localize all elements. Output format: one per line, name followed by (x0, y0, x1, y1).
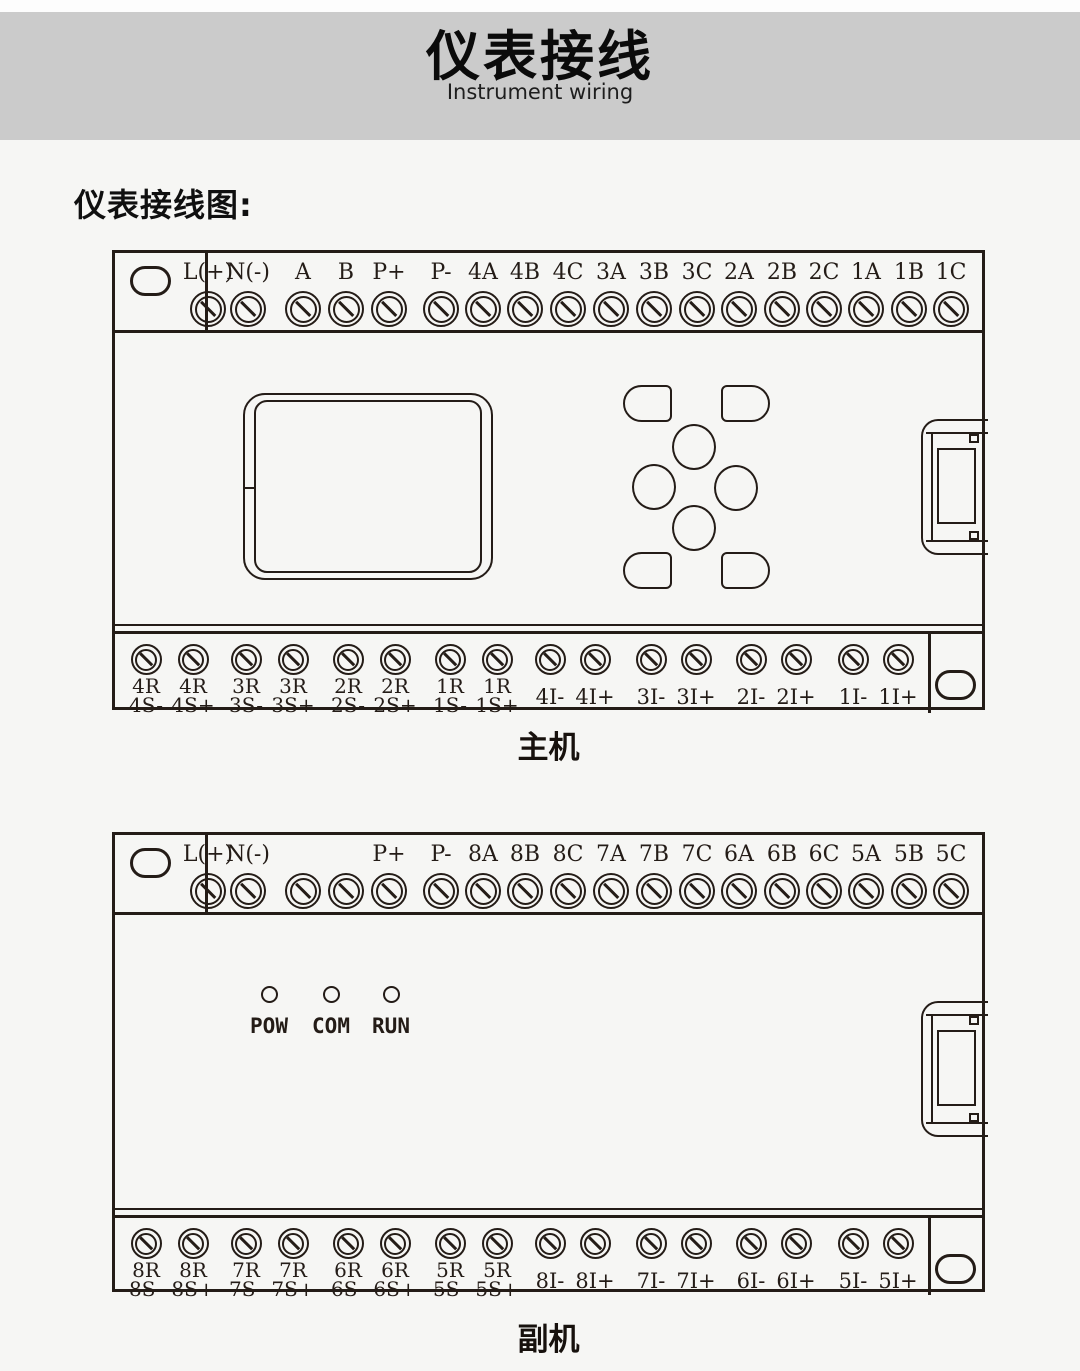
keypad-button-down (672, 505, 716, 551)
screw-terminal-icon (580, 1228, 611, 1259)
divider-line (928, 1218, 931, 1295)
connector-clip (969, 531, 979, 540)
terminal-label: 2R2S+ (366, 677, 424, 715)
section-title: 仪表接线图: (74, 180, 253, 226)
bottom-terminal-strip: 8R8S-8R8S+7R7S-7R7S+6R6S-6R6S+5R5S-5R5S+… (115, 1215, 982, 1295)
top-terminal-strip: L(+)N(-)P+P-8A8B8C7A7B7C6A6B6C5A5B5C (115, 835, 982, 915)
connector-socket (937, 1030, 976, 1106)
connector-cap-line (926, 1122, 988, 1124)
screw-terminal-icon (781, 644, 812, 675)
terminal-column: 7I+ (667, 1228, 725, 1291)
screw-terminal-icon (333, 1228, 364, 1259)
screw-terminal-icon (681, 644, 712, 675)
terminal-label: 6R6S+ (366, 1261, 424, 1299)
screw-terminal-icon (278, 1228, 309, 1259)
screw-terminal-icon (482, 1228, 513, 1259)
led-indicator-icon (323, 986, 340, 1003)
terminal-column: 2R2S+ (366, 644, 424, 715)
connector-clip (969, 434, 979, 443)
screw-terminal-icon (380, 644, 411, 675)
terminal-label: 4R4S+ (164, 677, 222, 715)
page-header: 仪表接线 Instrument wiring (0, 12, 1080, 140)
terminal-column: 7R7S+ (264, 1228, 322, 1299)
terminal-label: 6I+ (767, 1261, 825, 1291)
terminal-column: 8R8S+ (164, 1228, 222, 1299)
screw-terminal-icon (435, 1228, 466, 1259)
terminal-label: 5C (919, 838, 983, 873)
secondary-unit-diagram: L(+)N(-)P+P-8A8B8C7A7B7C6A6B6C5A5B5C POW… (112, 832, 985, 1292)
terminal-column: 5I+ (869, 1228, 927, 1291)
mounting-slot-icon (130, 848, 171, 878)
screw-terminal-icon (482, 644, 513, 675)
terminal-label: 8I+ (566, 1261, 624, 1291)
terminal-column: 3R3S+ (264, 644, 322, 715)
screw-terminal-icon (636, 1228, 667, 1259)
terminal-label: 8R8S+ (164, 1261, 222, 1299)
screw-terminal-icon (736, 1228, 767, 1259)
terminal-column: 6R6S+ (366, 1228, 424, 1299)
page-subtitle: Instrument wiring (0, 80, 1080, 104)
keypad-button-bottom-left (623, 552, 672, 589)
top-margin (0, 0, 1080, 12)
terminal-label: 3I+ (667, 677, 725, 707)
screw-terminal-icon (838, 644, 869, 675)
keypad-button-top-left (623, 385, 672, 422)
screw-terminal-icon (681, 1228, 712, 1259)
side-connector (921, 1001, 988, 1137)
screw-terminal-icon (333, 644, 364, 675)
terminal-label: 2I+ (767, 677, 825, 707)
screw-terminal-icon (883, 644, 914, 675)
divider-line (115, 1208, 982, 1210)
screw-terminal-icon (435, 644, 466, 675)
connector-cap-line (926, 540, 988, 542)
screw-terminal-icon (535, 644, 566, 675)
screw-terminal-icon (230, 873, 266, 909)
terminal-column: 4I+ (566, 644, 624, 707)
terminal-column: 8I+ (566, 1228, 624, 1291)
device-caption-main: 主机 (112, 722, 985, 767)
screw-terminal-icon (883, 1228, 914, 1259)
terminal-column: 1I+ (869, 644, 927, 707)
terminal-column: 3I+ (667, 644, 725, 707)
led-indicator-icon (383, 986, 400, 1003)
connector-clip (969, 1113, 979, 1122)
terminal-label: 5R5S+ (468, 1261, 526, 1299)
page: 仪表接线 Instrument wiring 仪表接线图: L(+)N(-)AB… (0, 0, 1080, 1371)
terminal-label: 1R1S+ (468, 677, 526, 715)
terminal-label: 4I+ (566, 677, 624, 707)
keypad-button-bottom-right (721, 552, 770, 589)
device-caption-secondary: 副机 (112, 1314, 985, 1359)
main-unit-diagram: L(+)N(-)ABP+P-4A4B4C3A3B3C2A2B2C1A1B1C (112, 250, 985, 710)
screw-terminal-icon (781, 1228, 812, 1259)
screw-terminal-icon (380, 1228, 411, 1259)
side-connector (921, 419, 988, 555)
terminal-column: 6I+ (767, 1228, 825, 1291)
connector-inner-line (931, 432, 933, 542)
screw-terminal-icon (535, 1228, 566, 1259)
screw-terminal-icon (231, 644, 262, 675)
led-label: RUN (349, 1014, 433, 1038)
terminal-column: 5R5S+ (468, 1228, 526, 1299)
connector-inner-line (931, 1014, 933, 1124)
keypad-button-up (672, 424, 716, 470)
page-title: 仪表接线 (0, 28, 1080, 86)
screw-terminal-icon (178, 644, 209, 675)
screw-terminal-icon (278, 644, 309, 675)
terminal-label: 7I+ (667, 1261, 725, 1291)
screw-terminal-icon (933, 873, 969, 909)
terminal-label: 5I+ (869, 1261, 927, 1291)
mounting-slot-icon (935, 670, 976, 700)
terminal-label: 3R3S+ (264, 677, 322, 715)
terminal-column: 5C (919, 838, 983, 909)
bottom-terminal-strip: 4R4S-4R4S+3R3S-3R3S+2R2S-2R2S+1R1S-1R1S+… (115, 631, 982, 713)
connector-socket (937, 448, 976, 524)
divider-line (928, 634, 931, 713)
led-indicator-icon (261, 986, 278, 1003)
mounting-slot-icon (935, 1254, 976, 1284)
screw-terminal-icon (131, 1228, 162, 1259)
connector-clip (969, 1016, 979, 1025)
screw-terminal-icon (178, 1228, 209, 1259)
divider-line (115, 624, 982, 626)
screw-terminal-icon (736, 644, 767, 675)
keypad-button-left (632, 464, 676, 510)
terminal-label: 1I+ (869, 677, 927, 707)
terminal-label: 7R7S+ (264, 1261, 322, 1299)
keypad-button-right (714, 465, 758, 511)
screw-terminal-icon (231, 1228, 262, 1259)
screw-terminal-icon (371, 873, 407, 909)
terminal-column: 4R4S+ (164, 644, 222, 715)
screw-terminal-icon (131, 644, 162, 675)
screw-terminal-icon (636, 644, 667, 675)
terminal-column: 2I+ (767, 644, 825, 707)
terminal-column: 1R1S+ (468, 644, 526, 715)
screw-terminal-icon (580, 644, 611, 675)
keypad-button-top-right (721, 385, 770, 422)
screw-terminal-icon (838, 1228, 869, 1259)
